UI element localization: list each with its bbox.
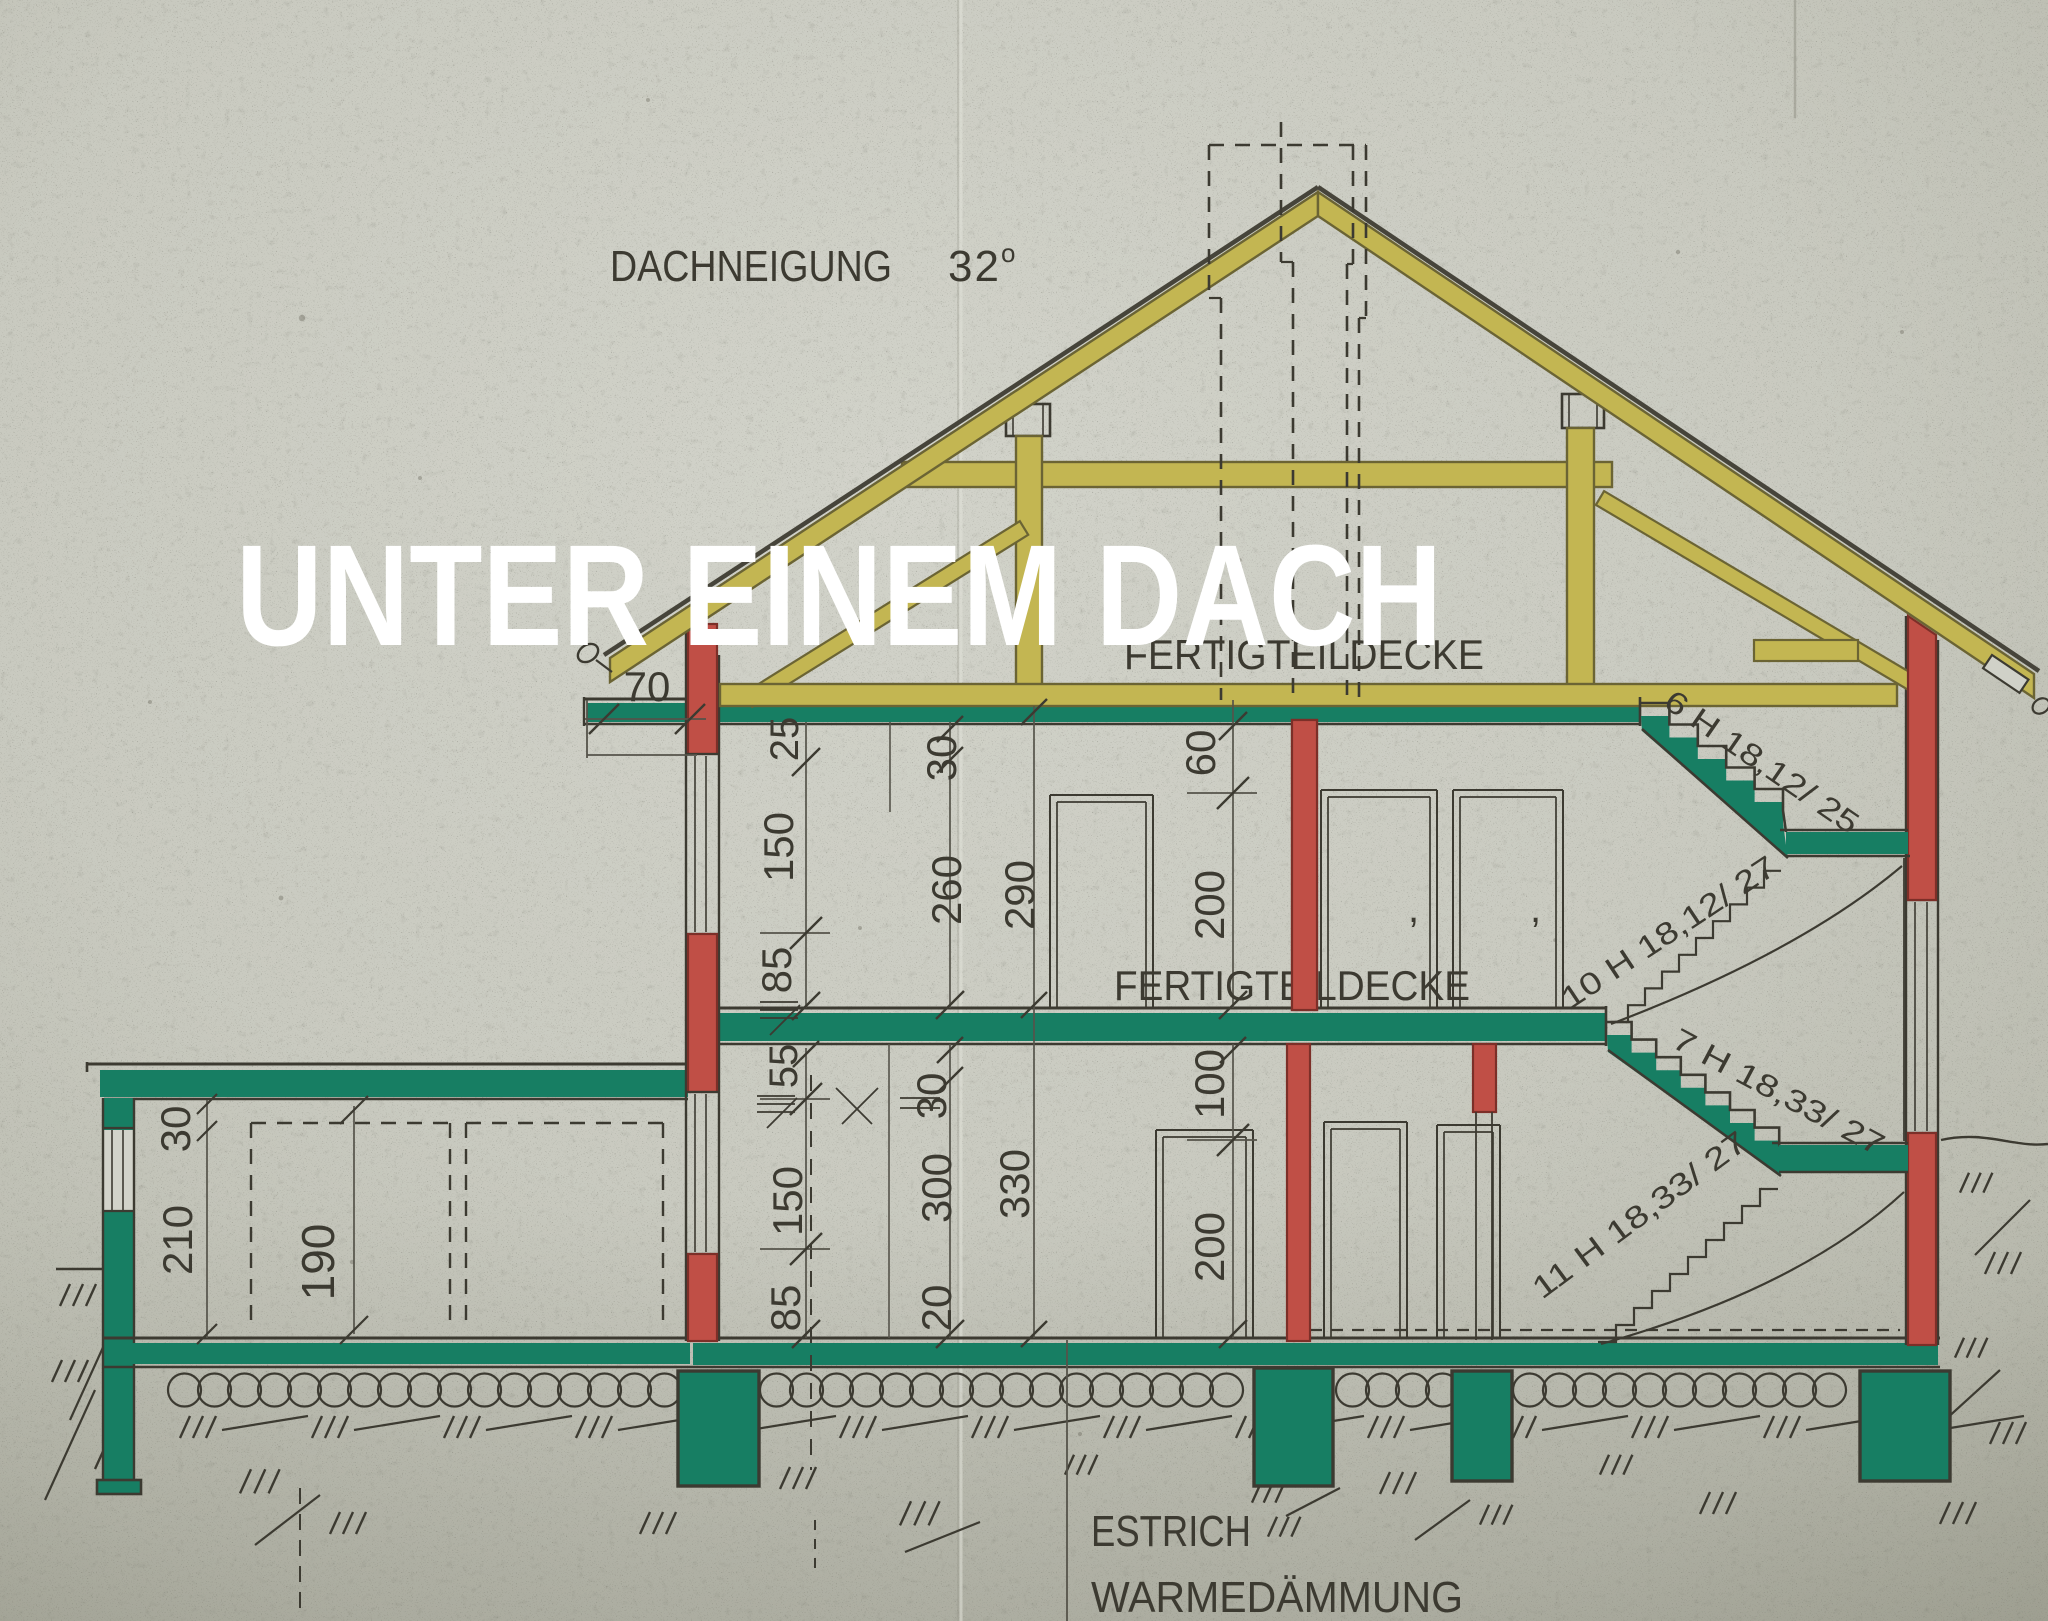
svg-text:30: 30 [152,1106,199,1153]
svg-text:60: 60 [1177,730,1224,777]
svg-text:260: 260 [923,855,970,925]
svg-text:85: 85 [753,947,800,994]
svg-text:300: 300 [913,1153,960,1223]
svg-text:DACHNEIGUNG: DACHNEIGUNG [610,242,892,291]
svg-text:85: 85 [762,1285,809,1332]
svg-text:30: 30 [908,1073,955,1120]
svg-text:UNTER EINEM DACH: UNTER EINEM DACH [236,516,1442,677]
svg-text:330: 330 [991,1149,1038,1219]
svg-text:30: 30 [918,735,965,782]
svg-text:190: 190 [292,1224,344,1301]
svg-text:32: 32 [948,242,1001,291]
svg-text:,: , [1408,887,1419,931]
svg-text:100: 100 [1186,1049,1233,1119]
svg-text:,: , [1530,887,1541,931]
svg-text:290: 290 [996,860,1043,930]
svg-text:200: 200 [1186,1212,1233,1282]
svg-text:210: 210 [154,1205,201,1275]
svg-text:25: 25 [763,717,807,762]
svg-text:55: 55 [762,1044,806,1089]
svg-text:ESTRICH: ESTRICH [1091,1507,1251,1556]
svg-text:200: 200 [1186,870,1233,940]
svg-text:o: o [1001,238,1015,268]
svg-text:20: 20 [913,1285,960,1332]
svg-text:150: 150 [764,1166,811,1236]
svg-text:WARMEDÄMMUNG: WARMEDÄMMUNG [1091,1573,1463,1621]
svg-text:150: 150 [755,812,802,882]
